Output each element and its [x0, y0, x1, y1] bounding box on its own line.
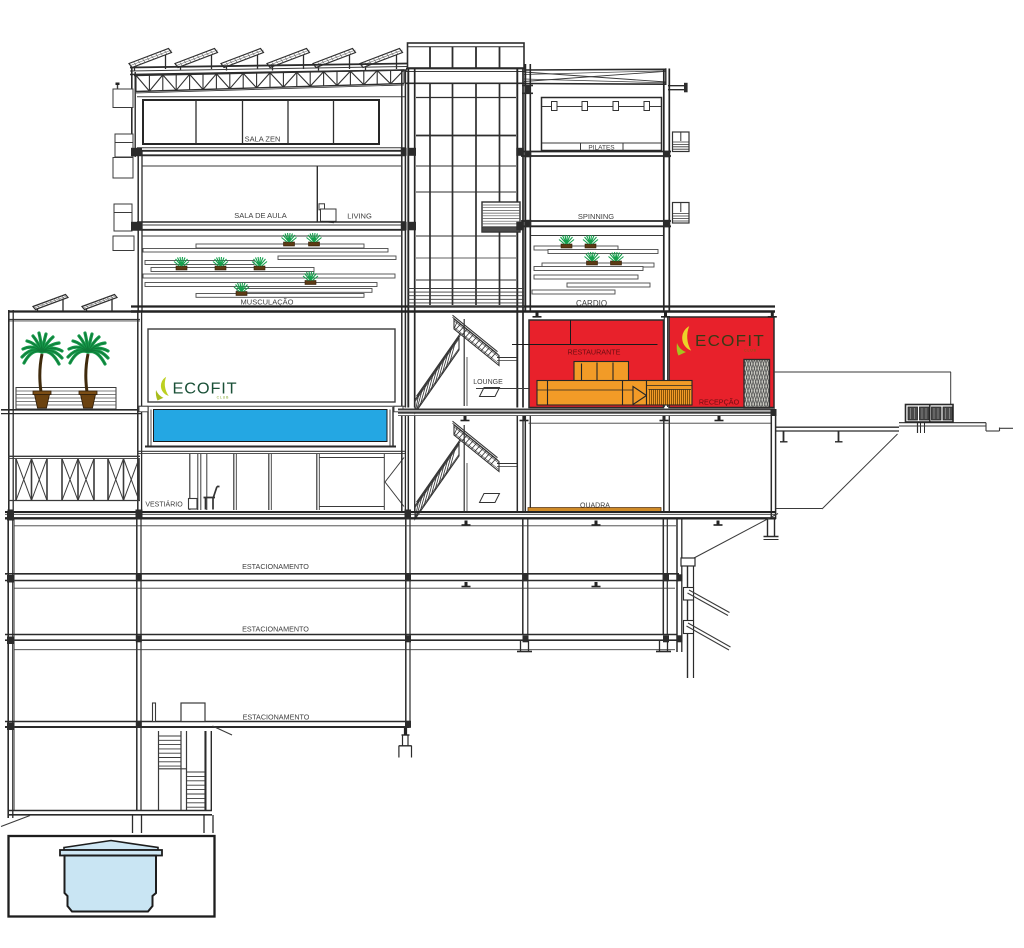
svg-text:PILATES: PILATES — [588, 144, 615, 151]
svg-text:MUSCULAÇÃO: MUSCULAÇÃO — [241, 298, 294, 307]
svg-text:RECEPÇÃO: RECEPÇÃO — [699, 398, 740, 407]
svg-text:CARDIO: CARDIO — [576, 299, 607, 308]
svg-text:ECOFIT: ECOFIT — [695, 333, 765, 350]
svg-text:LOUNGE: LOUNGE — [473, 379, 503, 386]
svg-text:C L U B: C L U B — [744, 349, 756, 353]
svg-text:ESTACIONAMENTO: ESTACIONAMENTO — [242, 562, 309, 571]
svg-text:SALA DE AULA: SALA DE AULA — [234, 211, 287, 220]
svg-text:VESTIÁRIO: VESTIÁRIO — [145, 500, 183, 509]
svg-text:SPINNING: SPINNING — [578, 212, 614, 221]
svg-text:ESTACIONAMENTO: ESTACIONAMENTO — [243, 713, 310, 722]
svg-text:C L U B: C L U B — [217, 396, 229, 400]
svg-text:LIVING: LIVING — [347, 212, 372, 221]
svg-text:RESTAURANTE: RESTAURANTE — [568, 348, 621, 357]
svg-text:SALA ZEN: SALA ZEN — [245, 135, 281, 144]
svg-text:ESTACIONAMENTO: ESTACIONAMENTO — [242, 625, 309, 634]
